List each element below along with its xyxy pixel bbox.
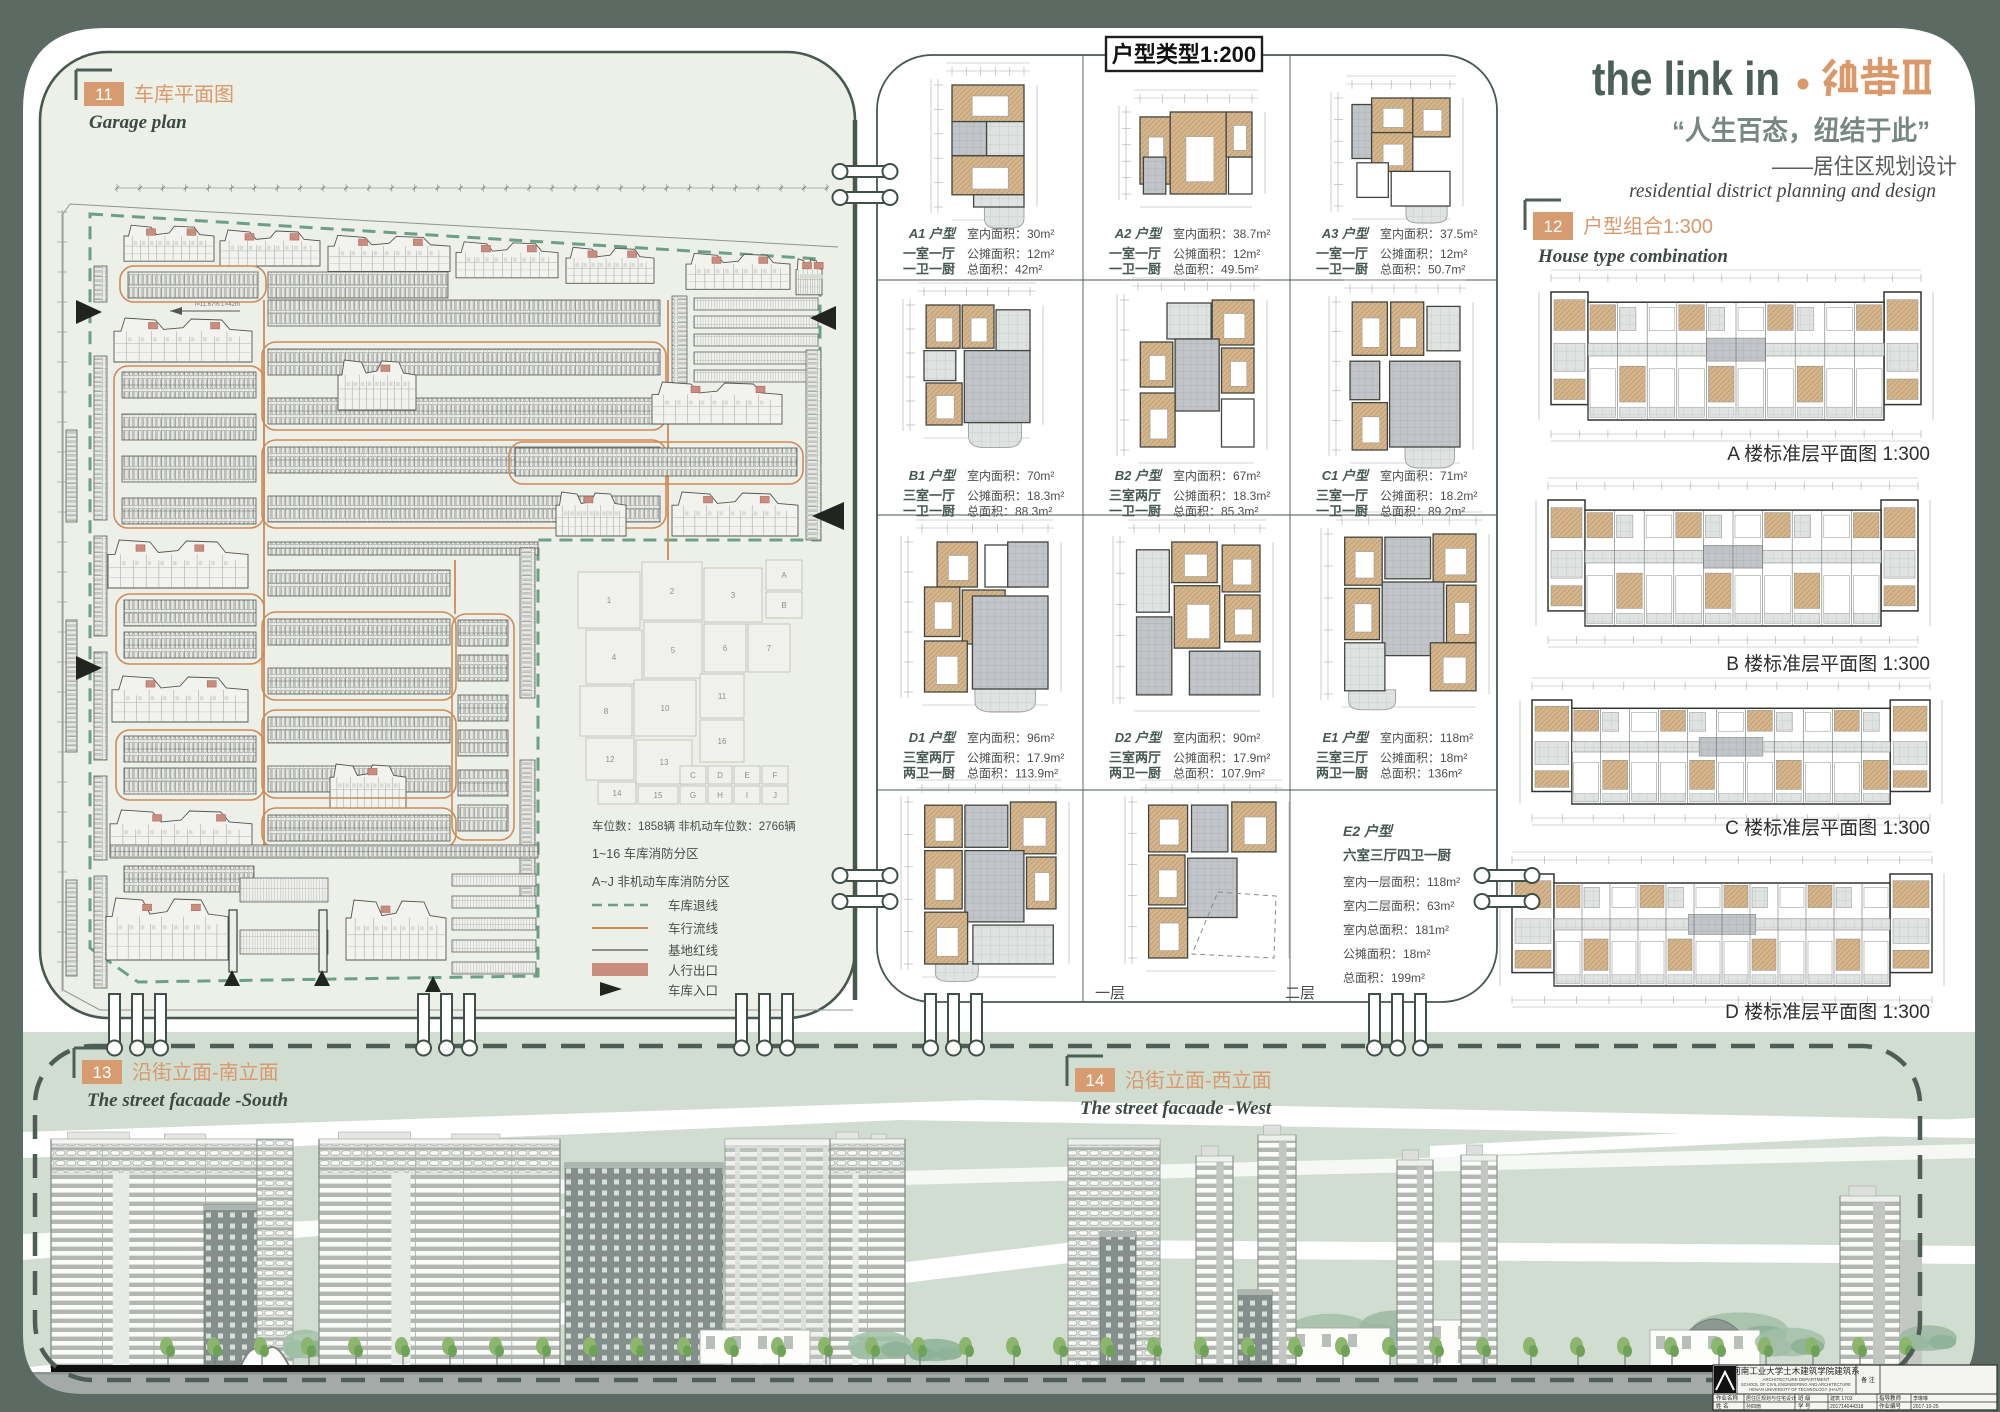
svg-text:指导教师: 指导教师	[1879, 1394, 1902, 1402]
svg-text:13: 13	[93, 1063, 112, 1082]
svg-text:A~J 非机动车库消防分区: A~J 非机动车库消防分区	[592, 874, 730, 889]
svg-text:车行流线: 车行流线	[668, 921, 719, 936]
svg-text:D 楼标准层平面图 1:300: D 楼标准层平面图 1:300	[1725, 1001, 1930, 1023]
svg-text:7: 7	[767, 644, 772, 653]
svg-text:A: A	[781, 571, 787, 580]
svg-text:4: 4	[612, 653, 617, 662]
svg-text:总面积：85.3m²: 总面积：85.3m²	[1173, 505, 1258, 519]
svg-text:2017-10-25: 2017-10-25	[1913, 1404, 1939, 1410]
svg-text:公摊面积：12m²: 公摊面积：12m²	[1380, 247, 1467, 261]
svg-text:一室一厅: 一室一厅	[1316, 246, 1368, 261]
svg-text:11: 11	[718, 692, 727, 701]
svg-text:车库平面图: 车库平面图	[134, 83, 234, 106]
svg-text:沿街立面-西立面: 沿街立面-西立面	[1125, 1069, 1272, 1092]
svg-text:B1 户型: B1 户型	[909, 468, 957, 483]
svg-text:一室一厅: 一室一厅	[1109, 246, 1161, 261]
svg-text:孙四雨: 孙四雨	[1746, 1403, 1761, 1410]
svg-text:一卫一厨: 一卫一厨	[1316, 504, 1368, 519]
svg-text:公摊面积：17.9m²: 公摊面积：17.9m²	[1173, 751, 1270, 765]
svg-text:基地红线: 基地红线	[668, 943, 719, 958]
svg-text:车库入口: 车库入口	[668, 983, 718, 998]
svg-text:一卫一厨: 一卫一厨	[903, 504, 955, 519]
svg-text:室内面积：96m²: 室内面积：96m²	[967, 730, 1054, 745]
svg-text:三室三厅: 三室三厅	[1316, 750, 1368, 765]
svg-text:12: 12	[1544, 217, 1563, 236]
svg-text:一卫一厨: 一卫一厨	[1316, 262, 1368, 277]
svg-text:三室两厅: 三室两厅	[1109, 488, 1161, 503]
svg-text:H: H	[717, 791, 723, 800]
svg-text:I: I	[746, 791, 748, 800]
svg-text:总面积：50.7m²: 总面积：50.7m²	[1380, 263, 1465, 277]
svg-text:班 级: 班 级	[1798, 1394, 1811, 1402]
svg-text:三室两厅: 三室两厅	[903, 750, 955, 765]
svg-text:总面积：113.9m²: 总面积：113.9m²	[967, 767, 1058, 781]
svg-text:A3 户型: A3 户型	[1321, 226, 1370, 241]
svg-text:车位数：1858辆 非机动车位数：2766辆: 车位数：1858辆 非机动车位数：2766辆	[592, 819, 796, 833]
svg-text:河南工业大学土木建筑学院建筑系: 河南工业大学土木建筑学院建筑系	[1732, 1366, 1860, 1376]
svg-text:14: 14	[613, 789, 622, 798]
svg-text:室内一层面积：118m²: 室内一层面积：118m²	[1343, 874, 1460, 889]
svg-text:1~16 车库消防分区: 1~16 车库消防分区	[592, 846, 699, 861]
svg-text:公摊面积：18.2m²: 公摊面积：18.2m²	[1380, 489, 1477, 503]
svg-text:一卫一厨: 一卫一厨	[1109, 262, 1161, 277]
svg-text:一卫一厨: 一卫一厨	[1109, 504, 1161, 519]
svg-text:一层: 一层	[1095, 985, 1125, 1002]
svg-text:3: 3	[731, 591, 736, 600]
svg-text:J: J	[773, 791, 777, 800]
svg-text:“人生百态，纽结于此”: “人生百态，纽结于此”	[1672, 115, 1930, 146]
svg-text:C: C	[690, 771, 696, 780]
svg-text:B: B	[781, 601, 786, 610]
svg-text:公摊面积：18m²: 公摊面积：18m²	[1343, 947, 1430, 961]
svg-text:室内面积：37.5m²: 室内面积：37.5m²	[1380, 226, 1477, 241]
svg-text:作业名称: 作业名称	[1716, 1394, 1739, 1402]
svg-text:人行出口: 人行出口	[668, 964, 718, 978]
svg-text:两卫一厨: 两卫一厨	[1316, 766, 1368, 781]
svg-text:Garage plan: Garage plan	[89, 112, 187, 133]
svg-text:The street facaade -West: The street facaade -West	[1080, 1098, 1272, 1119]
svg-text:一卫一厨: 一卫一厨	[903, 262, 955, 277]
svg-text:室内面积：90m²: 室内面积：90m²	[1173, 730, 1260, 745]
svg-text:总面积：89.2m²: 总面积：89.2m²	[1380, 505, 1465, 519]
svg-text:G: G	[690, 791, 696, 800]
svg-text:学 号: 学 号	[1798, 1402, 1811, 1410]
svg-text:10: 10	[661, 704, 670, 713]
svg-text:D: D	[717, 771, 723, 780]
svg-text:residential district planning: residential district planning and design	[1629, 181, 1936, 202]
svg-text:室内面积：70m²: 室内面积：70m²	[967, 468, 1054, 483]
svg-text:公摊面积：12m²: 公摊面积：12m²	[1173, 247, 1260, 261]
svg-text:总面积：49.5m²: 总面积：49.5m²	[1173, 263, 1258, 277]
svg-text:室内面积：67m²: 室内面积：67m²	[1173, 468, 1260, 483]
svg-text:李琳琳: 李琳琳	[1913, 1395, 1928, 1402]
svg-text:居住区规划与住宅设计: 居住区规划与住宅设计	[1746, 1395, 1796, 1402]
svg-text:i=11.67% L=42m: i=11.67% L=42m	[195, 302, 240, 308]
svg-text:2: 2	[670, 587, 675, 596]
svg-text:姓 名: 姓 名	[1716, 1402, 1729, 1410]
svg-text:室内面积：38.7m²: 室内面积：38.7m²	[1173, 226, 1270, 241]
svg-text:HENAN UNIVERSITY OF TECHNOLOGY: HENAN UNIVERSITY OF TECHNOLOGY (HAUT)	[1749, 1387, 1843, 1392]
svg-text:14: 14	[1086, 1071, 1105, 1090]
svg-text:总面积：136m²: 总面积：136m²	[1380, 767, 1462, 781]
svg-text:室内面积：71m²: 室内面积：71m²	[1380, 468, 1467, 483]
svg-text:201714044318: 201714044318	[1830, 1404, 1864, 1410]
svg-text:户型组合1:300: 户型组合1:300	[1583, 215, 1713, 238]
svg-text:D2 户型: D2 户型	[1115, 730, 1163, 745]
svg-text:12: 12	[606, 755, 615, 764]
svg-text:8: 8	[604, 707, 609, 716]
svg-text:作业编号: 作业编号	[1879, 1402, 1902, 1410]
svg-text:室内面积：30m²: 室内面积：30m²	[967, 226, 1054, 241]
svg-text:沿街立面-南立面: 沿街立面-南立面	[132, 1061, 279, 1084]
svg-text:车库退线: 车库退线	[668, 898, 719, 913]
svg-text:F: F	[773, 771, 778, 780]
svg-text:一室一厅: 一室一厅	[903, 246, 955, 261]
svg-text:C 楼标准层平面图 1:300: C 楼标准层平面图 1:300	[1725, 817, 1930, 839]
svg-text:E1 户型: E1 户型	[1322, 730, 1370, 745]
svg-text:三室两厅: 三室两厅	[1109, 750, 1161, 765]
svg-text:C1 户型: C1 户型	[1322, 468, 1370, 483]
svg-text:两卫一厨: 两卫一厨	[1109, 766, 1161, 781]
svg-text:the link in: the link in	[1592, 52, 1780, 105]
svg-text:1: 1	[607, 596, 612, 605]
svg-text:——居住区规划设计: ——居住区规划设计	[1772, 154, 1957, 179]
svg-text:11: 11	[95, 85, 113, 104]
svg-text:16: 16	[718, 737, 727, 746]
svg-text:B 楼标准层平面图 1:300: B 楼标准层平面图 1:300	[1726, 653, 1930, 675]
svg-text:D1 户型: D1 户型	[909, 730, 957, 745]
svg-text:总面积：88.3m²: 总面积：88.3m²	[967, 505, 1052, 519]
svg-text:A2 户型: A2 户型	[1114, 226, 1163, 241]
svg-text:The street facaade -South: The street facaade -South	[87, 1090, 288, 1111]
svg-text:公摊面积：18m²: 公摊面积：18m²	[1380, 751, 1467, 765]
svg-text:公摊面积：17.9m²: 公摊面积：17.9m²	[967, 751, 1064, 765]
svg-text:13: 13	[660, 758, 669, 767]
svg-text:House type combination: House type combination	[1537, 246, 1728, 267]
svg-text:室内面积：118m²: 室内面积：118m²	[1380, 730, 1473, 745]
svg-text:15: 15	[654, 791, 663, 800]
svg-text:A1 户型: A1 户型	[908, 226, 957, 241]
svg-text:室内总面积：181m²: 室内总面积：181m²	[1343, 922, 1449, 937]
svg-text:户型类型1:200: 户型类型1:200	[1112, 42, 1256, 67]
svg-text:备 注: 备 注	[1861, 1376, 1875, 1384]
svg-text:E2 户型: E2 户型	[1343, 823, 1394, 839]
svg-text:三室一厅: 三室一厅	[903, 488, 955, 503]
svg-text:公摊面积：12m²: 公摊面积：12m²	[967, 247, 1054, 261]
svg-text:总面积：199m²: 总面积：199m²	[1343, 971, 1425, 985]
svg-text:二层: 二层	[1285, 985, 1315, 1002]
svg-text:六室三厅四卫一厨: 六室三厅四卫一厨	[1343, 847, 1451, 863]
svg-text:B2 户型: B2 户型	[1115, 468, 1163, 483]
svg-text:5: 5	[671, 646, 676, 655]
svg-text:公摊面积：18.3m²: 公摊面积：18.3m²	[967, 489, 1064, 503]
svg-text:总面积：42m²: 总面积：42m²	[967, 263, 1042, 277]
svg-text:两卫一厨: 两卫一厨	[903, 766, 955, 781]
svg-text:建筑 1703: 建筑 1703	[1830, 1395, 1853, 1402]
svg-text:三室一厅: 三室一厅	[1316, 488, 1368, 503]
svg-text:公摊面积：18.3m²: 公摊面积：18.3m²	[1173, 489, 1270, 503]
svg-text:6: 6	[723, 644, 728, 653]
svg-text:A 楼标准层平面图 1:300: A 楼标准层平面图 1:300	[1727, 443, 1930, 465]
svg-text:总面积：107.9m²: 总面积：107.9m²	[1173, 767, 1265, 781]
svg-text:E: E	[744, 771, 749, 780]
svg-text:室内二层面积：63m²: 室内二层面积：63m²	[1343, 898, 1454, 913]
